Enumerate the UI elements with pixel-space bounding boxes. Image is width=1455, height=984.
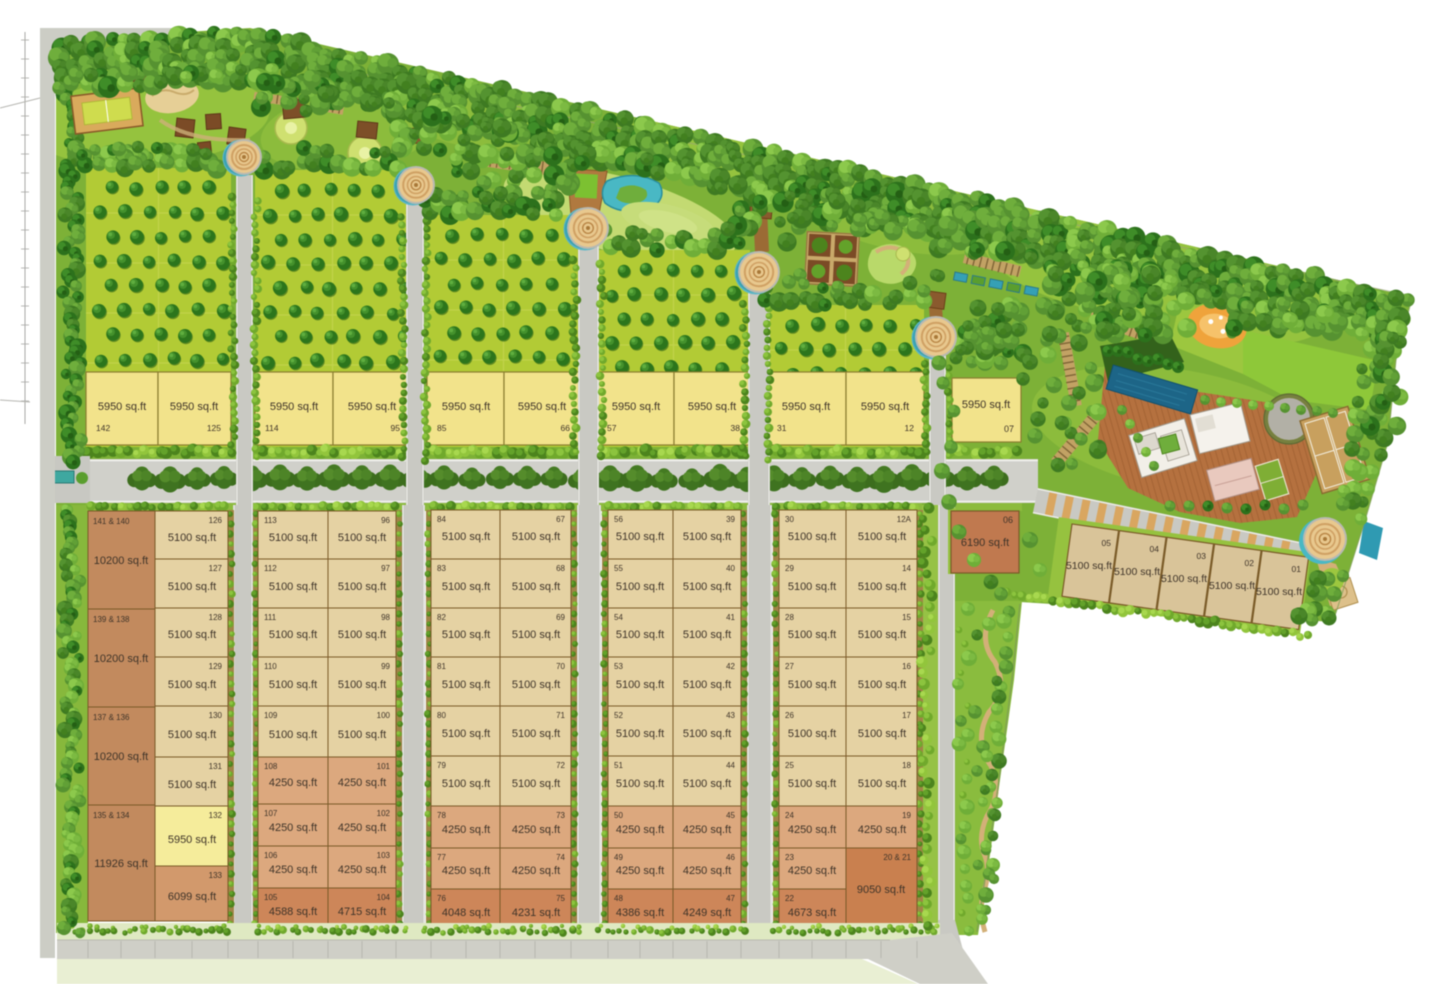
svg-text:28: 28	[785, 613, 794, 622]
svg-text:4250 sq.ft: 4250 sq.ft	[338, 822, 386, 834]
svg-text:5100 sq.ft: 5100 sq.ft	[858, 778, 906, 790]
svg-text:104: 104	[377, 893, 391, 902]
svg-text:14: 14	[902, 564, 911, 573]
svg-text:5100 sq.ft: 5100 sq.ft	[512, 629, 560, 641]
svg-text:108: 108	[264, 762, 278, 771]
svg-text:5100 sq.ft: 5100 sq.ft	[338, 729, 386, 741]
svg-text:48: 48	[614, 894, 623, 903]
svg-text:05: 05	[1102, 538, 1112, 548]
svg-text:5100 sq.ft: 5100 sq.ft	[858, 679, 906, 691]
svg-text:10200 sq.ft: 10200 sq.ft	[94, 555, 148, 567]
svg-text:22: 22	[785, 894, 794, 903]
svg-text:4250 sq.ft: 4250 sq.ft	[338, 777, 386, 789]
svg-text:5100 sq.ft: 5100 sq.ft	[788, 778, 836, 790]
svg-text:5100 sq.ft: 5100 sq.ft	[512, 728, 560, 740]
svg-text:4250 sq.ft: 4250 sq.ft	[788, 824, 836, 836]
svg-text:4250 sq.ft: 4250 sq.ft	[338, 864, 386, 876]
svg-text:128: 128	[209, 613, 223, 622]
svg-text:47: 47	[726, 894, 735, 903]
svg-text:5950 sq.ft: 5950 sq.ft	[612, 401, 660, 413]
svg-text:30: 30	[785, 515, 794, 524]
svg-text:10200 sq.ft: 10200 sq.ft	[94, 653, 148, 665]
svg-text:71: 71	[556, 711, 565, 720]
svg-text:5100 sq.ft: 5100 sq.ft	[1161, 573, 1207, 585]
svg-text:5100 sq.ft: 5100 sq.ft	[858, 728, 906, 740]
svg-text:5950 sq.ft: 5950 sq.ft	[170, 401, 218, 413]
svg-text:18: 18	[902, 761, 911, 770]
svg-text:12A: 12A	[897, 515, 912, 524]
svg-text:112: 112	[264, 564, 277, 573]
svg-text:127: 127	[209, 564, 223, 573]
svg-text:67: 67	[556, 515, 565, 524]
svg-text:66: 66	[561, 423, 571, 433]
svg-text:5100 sq.ft: 5100 sq.ft	[788, 728, 836, 740]
svg-text:46: 46	[726, 853, 735, 862]
svg-text:78: 78	[437, 811, 446, 820]
svg-text:5100 sq.ft: 5100 sq.ft	[442, 629, 490, 641]
svg-text:5100 sq.ft: 5100 sq.ft	[683, 581, 731, 593]
svg-text:139 & 138: 139 & 138	[93, 615, 130, 624]
svg-text:81: 81	[437, 662, 446, 671]
svg-text:4250 sq.ft: 4250 sq.ft	[683, 824, 731, 836]
svg-text:12: 12	[905, 423, 915, 433]
svg-text:5100 sq.ft: 5100 sq.ft	[683, 679, 731, 691]
svg-text:142: 142	[96, 423, 110, 433]
svg-text:100: 100	[377, 711, 391, 720]
svg-text:5100 sq.ft: 5100 sq.ft	[683, 778, 731, 790]
svg-text:5100 sq.ft: 5100 sq.ft	[512, 581, 560, 593]
svg-text:5100 sq.ft: 5100 sq.ft	[616, 629, 664, 641]
svg-text:107: 107	[264, 809, 278, 818]
svg-text:56: 56	[614, 515, 623, 524]
svg-text:130: 130	[209, 711, 223, 720]
svg-text:24: 24	[785, 811, 794, 820]
svg-text:5100 sq.ft: 5100 sq.ft	[442, 581, 490, 593]
svg-text:5100 sq.ft: 5100 sq.ft	[788, 531, 836, 543]
svg-text:5100 sq.ft: 5100 sq.ft	[616, 581, 664, 593]
svg-text:79: 79	[437, 761, 446, 770]
svg-text:5100 sq.ft: 5100 sq.ft	[616, 531, 664, 543]
svg-text:5950 sq.ft: 5950 sq.ft	[962, 399, 1010, 411]
svg-text:76: 76	[437, 894, 446, 903]
svg-text:45: 45	[726, 811, 735, 820]
svg-text:5100 sq.ft: 5100 sq.ft	[442, 679, 490, 691]
svg-text:4250 sq.ft: 4250 sq.ft	[269, 822, 317, 834]
svg-text:97: 97	[381, 564, 390, 573]
svg-text:5100 sq.ft: 5100 sq.ft	[788, 679, 836, 691]
svg-text:54: 54	[614, 613, 623, 622]
svg-text:5100 sq.ft: 5100 sq.ft	[858, 581, 906, 593]
svg-text:02: 02	[1245, 558, 1255, 568]
svg-text:4249 sq.ft: 4249 sq.ft	[683, 907, 731, 919]
svg-text:4250 sq.ft: 4250 sq.ft	[442, 824, 490, 836]
svg-text:5950 sq.ft: 5950 sq.ft	[270, 401, 318, 413]
svg-text:5950 sq.ft: 5950 sq.ft	[348, 401, 396, 413]
svg-text:04: 04	[1150, 544, 1160, 554]
svg-text:5100 sq.ft: 5100 sq.ft	[168, 729, 216, 741]
svg-text:5100 sq.ft: 5100 sq.ft	[616, 778, 664, 790]
svg-text:72: 72	[556, 761, 565, 770]
svg-text:03: 03	[1197, 551, 1207, 561]
svg-text:4386 sq.ft: 4386 sq.ft	[616, 907, 664, 919]
svg-text:73: 73	[556, 811, 565, 820]
svg-text:106: 106	[264, 851, 278, 860]
svg-text:55: 55	[614, 564, 623, 573]
svg-text:5950 sq.ft: 5950 sq.ft	[518, 401, 566, 413]
svg-text:9050 sq.ft: 9050 sq.ft	[857, 884, 905, 896]
svg-text:74: 74	[556, 853, 565, 862]
svg-text:5100 sq.ft: 5100 sq.ft	[616, 728, 664, 740]
svg-text:84: 84	[437, 515, 446, 524]
svg-text:5100 sq.ft: 5100 sq.ft	[442, 531, 490, 543]
svg-text:50: 50	[614, 811, 623, 820]
svg-text:75: 75	[556, 894, 565, 903]
svg-text:27: 27	[785, 662, 794, 671]
svg-text:5100 sq.ft: 5100 sq.ft	[442, 728, 490, 740]
svg-text:5100 sq.ft: 5100 sq.ft	[168, 532, 216, 544]
svg-text:102: 102	[377, 809, 391, 818]
svg-text:5100 sq.ft: 5100 sq.ft	[269, 532, 317, 544]
svg-text:49: 49	[614, 853, 623, 862]
svg-text:5100 sq.ft: 5100 sq.ft	[788, 581, 836, 593]
svg-text:43: 43	[726, 711, 735, 720]
svg-text:110: 110	[264, 662, 277, 671]
svg-text:5100 sq.ft: 5100 sq.ft	[683, 629, 731, 641]
svg-text:5100 sq.ft: 5100 sq.ft	[338, 581, 386, 593]
svg-text:82: 82	[437, 613, 446, 622]
svg-text:4250 sq.ft: 4250 sq.ft	[858, 824, 906, 836]
svg-text:5100 sq.ft: 5100 sq.ft	[512, 531, 560, 543]
svg-text:4673 sq.ft: 4673 sq.ft	[788, 907, 836, 919]
svg-text:4048 sq.ft: 4048 sq.ft	[442, 907, 490, 919]
svg-text:4250 sq.ft: 4250 sq.ft	[269, 777, 317, 789]
svg-text:132: 132	[209, 811, 223, 820]
svg-text:5100 sq.ft: 5100 sq.ft	[269, 581, 317, 593]
svg-text:44: 44	[726, 761, 735, 770]
svg-text:5100 sq.ft: 5100 sq.ft	[1114, 566, 1160, 578]
svg-text:17: 17	[902, 711, 911, 720]
svg-text:5950 sq.ft: 5950 sq.ft	[861, 401, 909, 413]
svg-text:5100 sq.ft: 5100 sq.ft	[512, 778, 560, 790]
svg-text:5950 sq.ft: 5950 sq.ft	[442, 401, 490, 413]
svg-text:70: 70	[556, 662, 565, 671]
svg-text:5100 sq.ft: 5100 sq.ft	[168, 581, 216, 593]
svg-text:99: 99	[381, 662, 390, 671]
svg-text:23: 23	[785, 853, 794, 862]
svg-text:5950 sq.ft: 5950 sq.ft	[782, 401, 830, 413]
svg-text:4250 sq.ft: 4250 sq.ft	[512, 865, 560, 877]
svg-text:6099 sq.ft: 6099 sq.ft	[168, 891, 216, 903]
svg-text:5100 sq.ft: 5100 sq.ft	[512, 679, 560, 691]
svg-text:5950 sq.ft: 5950 sq.ft	[688, 401, 736, 413]
svg-text:80: 80	[437, 711, 446, 720]
svg-text:126: 126	[209, 516, 223, 525]
svg-text:5100 sq.ft: 5100 sq.ft	[442, 778, 490, 790]
svg-text:5100 sq.ft: 5100 sq.ft	[168, 679, 216, 691]
svg-text:5100 sq.ft: 5100 sq.ft	[683, 531, 731, 543]
svg-text:141 & 140: 141 & 140	[93, 517, 130, 526]
svg-text:42: 42	[726, 662, 735, 671]
svg-text:5100 sq.ft: 5100 sq.ft	[858, 531, 906, 543]
svg-text:4250 sq.ft: 4250 sq.ft	[269, 864, 317, 876]
svg-text:103: 103	[377, 851, 391, 860]
svg-text:4250 sq.ft: 4250 sq.ft	[788, 865, 836, 877]
svg-text:41: 41	[726, 613, 735, 622]
svg-text:39: 39	[726, 515, 735, 524]
svg-text:38: 38	[731, 423, 741, 433]
svg-text:4250 sq.ft: 4250 sq.ft	[616, 865, 664, 877]
svg-text:5100 sq.ft: 5100 sq.ft	[338, 629, 386, 641]
svg-text:4250 sq.ft: 4250 sq.ft	[442, 865, 490, 877]
svg-text:105: 105	[264, 893, 278, 902]
svg-text:4250 sq.ft: 4250 sq.ft	[683, 865, 731, 877]
svg-text:4588 sq.ft: 4588 sq.ft	[269, 906, 317, 918]
svg-text:4250 sq.ft: 4250 sq.ft	[616, 824, 664, 836]
svg-text:111: 111	[264, 613, 277, 622]
svg-text:07: 07	[1004, 424, 1014, 434]
svg-text:5100 sq.ft: 5100 sq.ft	[1256, 586, 1302, 598]
svg-text:01: 01	[1292, 564, 1302, 574]
svg-text:129: 129	[209, 662, 223, 671]
svg-text:40: 40	[726, 564, 735, 573]
svg-text:68: 68	[556, 564, 565, 573]
svg-text:4250 sq.ft: 4250 sq.ft	[512, 824, 560, 836]
svg-text:29: 29	[785, 564, 794, 573]
svg-text:83: 83	[437, 564, 446, 573]
svg-text:98: 98	[381, 613, 390, 622]
svg-text:51: 51	[614, 761, 623, 770]
svg-text:5100 sq.ft: 5100 sq.ft	[858, 629, 906, 641]
svg-text:06: 06	[1003, 515, 1013, 525]
svg-text:95: 95	[391, 423, 401, 433]
svg-text:52: 52	[614, 711, 623, 720]
svg-text:137 & 136: 137 & 136	[93, 713, 130, 722]
svg-text:16: 16	[902, 662, 911, 671]
svg-text:5100 sq.ft: 5100 sq.ft	[1066, 560, 1112, 572]
svg-text:20 & 21: 20 & 21	[883, 853, 911, 862]
svg-text:4715 sq.ft: 4715 sq.ft	[338, 906, 386, 918]
svg-text:114: 114	[265, 423, 279, 433]
svg-text:96: 96	[381, 516, 390, 525]
svg-text:5100 sq.ft: 5100 sq.ft	[616, 679, 664, 691]
svg-text:5100 sq.ft: 5100 sq.ft	[168, 779, 216, 791]
svg-text:15: 15	[902, 613, 911, 622]
svg-text:101: 101	[377, 762, 391, 771]
svg-text:133: 133	[209, 871, 223, 880]
svg-text:4231 sq.ft: 4231 sq.ft	[512, 907, 560, 919]
svg-text:5100 sq.ft: 5100 sq.ft	[269, 679, 317, 691]
svg-text:113: 113	[264, 516, 277, 525]
svg-text:31: 31	[777, 423, 787, 433]
svg-text:5950 sq.ft: 5950 sq.ft	[168, 834, 216, 846]
svg-text:5100 sq.ft: 5100 sq.ft	[168, 629, 216, 641]
svg-text:5100 sq.ft: 5100 sq.ft	[1209, 580, 1255, 592]
svg-text:19: 19	[902, 811, 911, 820]
svg-text:5100 sq.ft: 5100 sq.ft	[338, 532, 386, 544]
svg-text:77: 77	[437, 853, 446, 862]
svg-text:131: 131	[209, 762, 223, 771]
svg-text:10200 sq.ft: 10200 sq.ft	[94, 751, 148, 763]
svg-text:6190 sq.ft: 6190 sq.ft	[961, 537, 1009, 549]
svg-text:5100 sq.ft: 5100 sq.ft	[338, 679, 386, 691]
svg-text:26: 26	[785, 711, 794, 720]
svg-text:5100 sq.ft: 5100 sq.ft	[269, 629, 317, 641]
svg-text:53: 53	[614, 662, 623, 671]
svg-text:5100 sq.ft: 5100 sq.ft	[269, 729, 317, 741]
svg-text:135 & 134: 135 & 134	[93, 811, 130, 820]
svg-text:69: 69	[556, 613, 565, 622]
svg-text:5950 sq.ft: 5950 sq.ft	[98, 401, 146, 413]
svg-text:85: 85	[437, 423, 447, 433]
svg-text:57: 57	[607, 423, 617, 433]
svg-text:11926 sq.ft: 11926 sq.ft	[94, 858, 148, 870]
svg-text:5100 sq.ft: 5100 sq.ft	[788, 629, 836, 641]
svg-text:109: 109	[264, 711, 278, 720]
svg-text:25: 25	[785, 761, 794, 770]
svg-text:5100 sq.ft: 5100 sq.ft	[683, 728, 731, 740]
svg-text:125: 125	[207, 423, 221, 433]
